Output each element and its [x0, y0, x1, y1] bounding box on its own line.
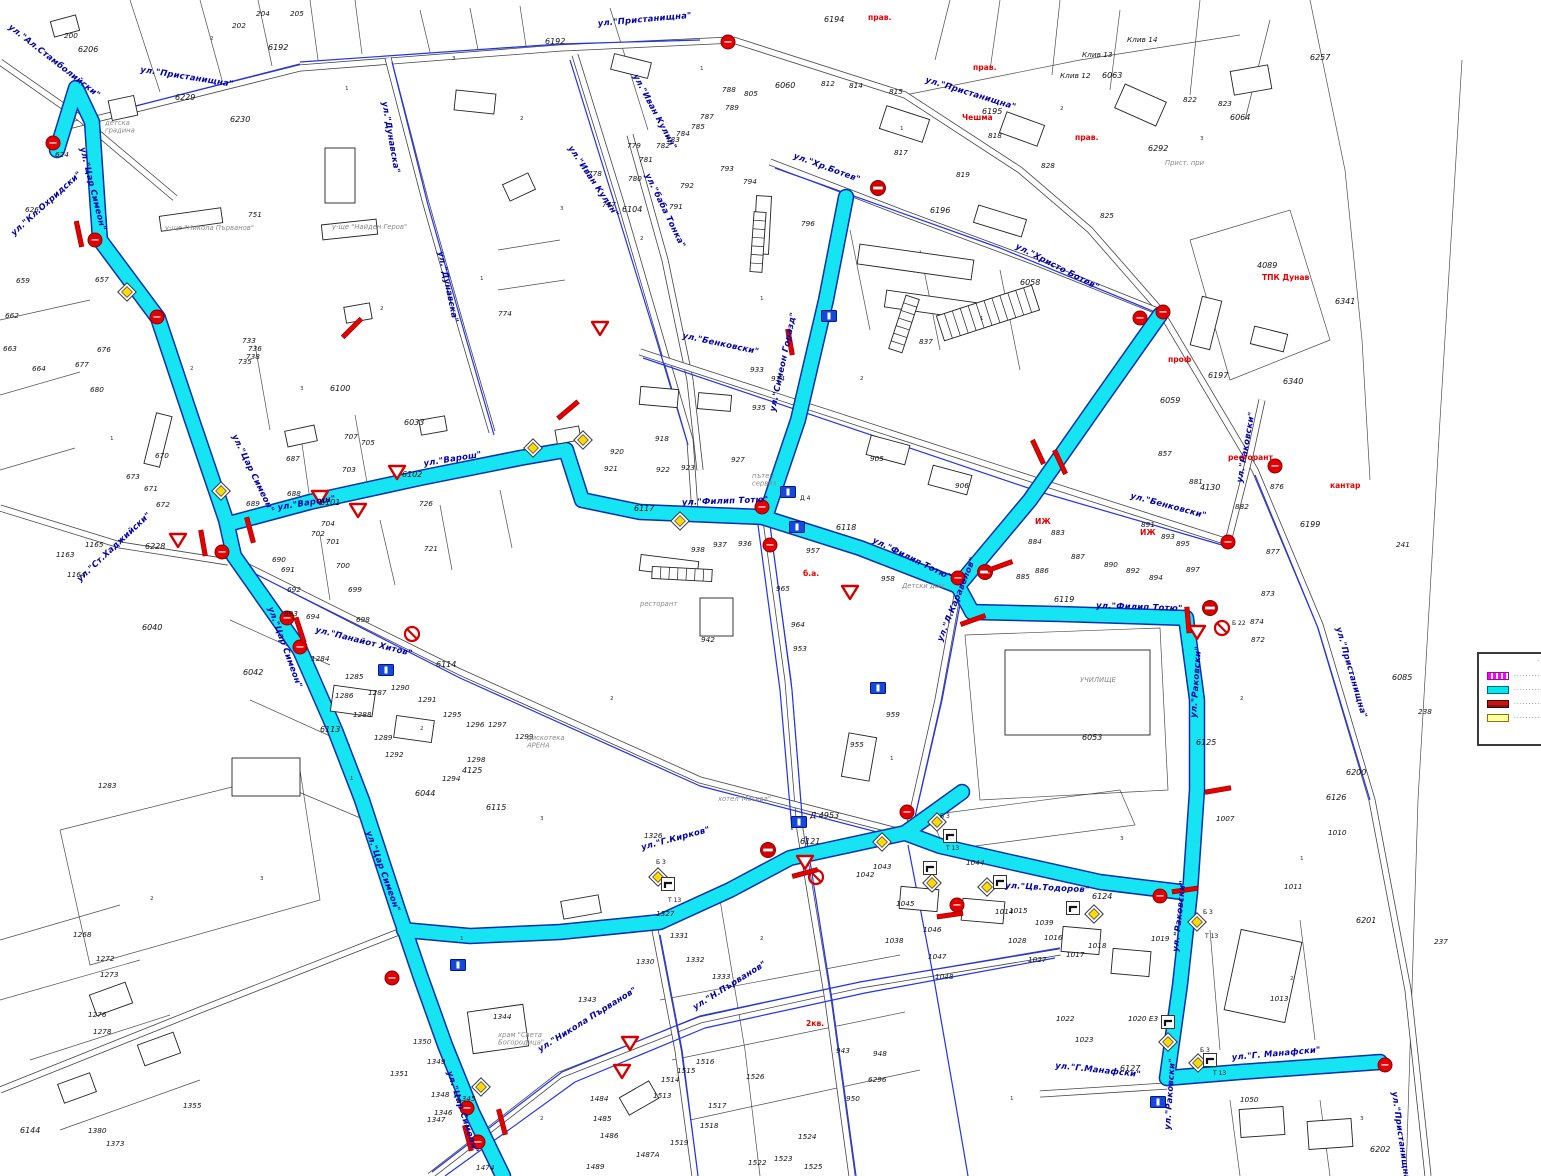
parcel-boundary: [310, 0, 318, 60]
legend-item-cyan-street: ··········: [1487, 686, 1541, 694]
poi-red-label: ТПК Дунав: [1262, 273, 1309, 282]
building-footprint: [1111, 948, 1151, 976]
parcel-number-label: 1048: [935, 972, 954, 981]
legend-title-dots: · ·: [1487, 658, 1541, 666]
parcel-number-label: 1487А: [636, 1150, 660, 1159]
parcel-number-label: 1347: [427, 1115, 446, 1124]
parcel-number-label: 885: [1016, 572, 1030, 581]
parcel-number-label: 1276: [88, 1010, 107, 1019]
house-number-label: 2: [640, 236, 644, 242]
traffic-sign-bar-icon: [987, 559, 1013, 572]
segment-number-label: 6199: [1300, 520, 1320, 529]
house-number-label: 3: [1120, 836, 1124, 842]
parcel-number-label: 780: [628, 174, 642, 183]
traffic-sign-circle-icon: [721, 35, 735, 49]
poi-red-label: ИЖ: [1035, 517, 1051, 526]
parcel-number-label: 794: [743, 177, 757, 186]
street-highlight: [958, 315, 1160, 586]
legend-label: ··········: [1514, 687, 1541, 694]
parcel-number-label: 873: [1261, 589, 1275, 598]
parcel-number-label: 751: [248, 210, 262, 219]
house-number-label: 3: [1360, 1116, 1364, 1122]
parcel-number-label: 689: [246, 499, 260, 508]
parcel-number-label: 935: [752, 403, 766, 412]
parcel-number-label: 676: [97, 345, 111, 354]
traffic-sign-circle-icon: [950, 898, 964, 912]
parcel-number-label: 1517: [708, 1101, 727, 1110]
parcel-number-label: 778: [588, 169, 602, 178]
street-name-label: ул."Пристанищна": [140, 64, 235, 89]
parcel-number-label: 1295: [443, 710, 462, 719]
street-name-label: ул."Пристанищна": [1390, 1091, 1413, 1176]
parcel-number-label: 238: [1418, 707, 1432, 716]
parcel-number-label: 936: [738, 539, 752, 548]
parcel-number-label: 959: [886, 710, 900, 719]
parcel-number-label: 815: [889, 87, 903, 96]
parcel-number-label: 785: [691, 122, 705, 131]
road-surface: [430, 952, 1060, 1176]
parcel-number-label: 814: [849, 81, 863, 90]
parcel-number-label: 789: [725, 103, 739, 112]
traffic-sign-circle-icon: [385, 971, 399, 985]
traffic-sign-circle-icon: [88, 233, 102, 247]
parcel-boundary: [498, 240, 560, 250]
traffic-sign-noentry-icon: [871, 181, 886, 196]
sign-code-label: Б 3: [656, 859, 666, 866]
parcel-number-label: 700: [336, 561, 350, 570]
parcel-number-label: 1288: [353, 710, 372, 719]
traffic-sign-yield-icon: [592, 322, 608, 335]
traffic-sign-diamond-icon: [1085, 905, 1103, 923]
parcel-number-label: 663: [3, 344, 17, 353]
building-footprint: [611, 54, 652, 79]
street-name-label: ул."Хр.Ботев": [792, 150, 862, 183]
building-footprint: [454, 90, 496, 114]
road-surface: [800, 830, 852, 1176]
segment-number-label: 6228: [145, 542, 165, 551]
traffic-sign-bluesign-icon: [781, 487, 796, 498]
parcel-number-label: 1294: [442, 774, 461, 783]
segment-number-label: 6340: [1283, 377, 1303, 386]
parcel-number-label: 953: [793, 644, 807, 653]
legend-item-yellow-sign: ··········: [1487, 714, 1541, 722]
segment-number-label: 6192: [545, 37, 565, 46]
parcel-number-label: 895: [1176, 539, 1190, 548]
street-highlight: [228, 450, 566, 524]
parcel-number-label: 923: [681, 463, 695, 472]
building-footprint: [639, 386, 678, 407]
parcel-number-label: 680: [90, 385, 104, 394]
parcel-number-label: 965: [776, 584, 790, 593]
house-number-label: 3: [1200, 136, 1204, 142]
parcel-number-label: Клив 12: [1060, 71, 1091, 80]
parcel-number-label: 1278: [93, 1027, 112, 1036]
parcel-number-label: 805: [744, 89, 758, 98]
traffic-sign-bar-icon: [937, 911, 963, 919]
house-number-label: 1: [480, 276, 484, 282]
segment-number-label: 6197: [1208, 371, 1229, 380]
parcel-boundary: [720, 900, 760, 1176]
parcel-number-label: 677: [75, 360, 89, 369]
parcel-number-label: 791: [669, 202, 683, 211]
building-footprint: [561, 895, 602, 919]
segment-number-label: 6053: [1082, 733, 1102, 742]
segment-number-label: 6119: [1054, 595, 1074, 604]
traffic-sign-circle-icon: [46, 136, 60, 150]
parcel-number-label: 1042: [856, 870, 875, 879]
building-footprint: [108, 96, 138, 121]
parcel-number-label: 1513: [653, 1091, 672, 1100]
parcel-number-label: 673: [126, 472, 140, 481]
parcel-number-label: 1292: [385, 750, 404, 759]
parcel-number-label: 1007: [1216, 814, 1235, 823]
traffic-sign-circle-icon: [1221, 535, 1235, 549]
traffic-sign-corner-icon: [944, 830, 957, 843]
parcel-number-label: 670: [155, 451, 169, 460]
parcel-boundary: [355, 415, 368, 488]
parcel-number-label: 938: [691, 545, 705, 554]
parcel-boundary: [1310, 0, 1370, 480]
traffic-sign-nostop-icon: [405, 627, 419, 641]
traffic-sign-bluesign-icon: [792, 817, 807, 828]
segment-number-label: 6192: [268, 43, 288, 52]
parcel-number-label: 237: [1434, 937, 1448, 946]
parcel-number-label: 883: [1051, 528, 1065, 537]
segment-number-label: 6292: [1148, 144, 1168, 153]
traffic-sign-circle-icon: [1156, 305, 1170, 319]
parcel-number-label: 1350: [413, 1037, 432, 1046]
parcel-number-label: 205: [290, 9, 304, 18]
poi-gray-label: у-ще "Никола Първанов": [164, 224, 254, 232]
parcel-number-label: 694: [306, 612, 320, 621]
parcel-number-label: 1028: [1008, 936, 1027, 945]
parcel-number-label: 1330: [636, 957, 655, 966]
parcel-number-label: 793: [720, 164, 734, 173]
parcel-number-label: 1515: [677, 1066, 696, 1075]
segment-number-label: 6117: [634, 504, 655, 513]
garage-row: [652, 566, 713, 581]
house-number-label: 1: [350, 776, 354, 782]
house-number-label: 1: [700, 66, 704, 72]
parcel-boundary: [1300, 920, 1315, 1040]
parcel-number-label: 202: [232, 21, 246, 30]
legend-label: ··········: [1514, 701, 1541, 708]
poi-gray-label: у-ще "Найден Геров": [331, 223, 407, 231]
street-name-label: ул."Бенковски": [682, 330, 760, 356]
parcel-boundary: [1190, 210, 1330, 380]
parcel-number-label: 876: [1270, 482, 1284, 491]
building-footprint: [394, 715, 435, 742]
parcel-number-label: 828: [1041, 161, 1055, 170]
parcel-number-label: 1017: [1066, 950, 1085, 959]
segment-number-label: 6040: [142, 623, 162, 632]
parcel-number-label: 958: [881, 574, 895, 583]
parcel-number-label: 659: [16, 276, 30, 285]
segment-number-label: 6201: [1356, 916, 1376, 925]
parcel-number-label: 937: [713, 540, 727, 549]
parcel-number-label: 921: [604, 464, 618, 473]
traffic-sign-corner-icon: [924, 862, 937, 875]
segment-number-label: 6044: [415, 789, 435, 798]
parcel-boundary: [380, 520, 395, 585]
poi-red-label: ресторант: [1228, 453, 1274, 462]
parcel-boundary: [355, 0, 362, 54]
house-number-label: 2: [520, 116, 524, 122]
parcel-number-label: 779: [627, 141, 641, 150]
parcel-number-label: 822: [1183, 95, 1197, 104]
parcel-number-label: 624: [55, 150, 69, 159]
parcel-boundary: [1052, 0, 1060, 75]
parcel-number-label: 704: [321, 519, 335, 528]
legend-label: ··········: [1514, 715, 1541, 722]
parcel-number-label: 1022: [1056, 1014, 1075, 1023]
traffic-sign-yield-icon: [350, 504, 366, 517]
sign-code-label: Б 3: [1203, 909, 1213, 916]
parcel-boundary: [935, 0, 950, 60]
segment-number-label: 6085: [1392, 673, 1412, 682]
house-number-label: 1: [460, 936, 464, 942]
street-name-label: ул."Дунавска": [436, 250, 461, 323]
parcel-number-label: 672: [156, 500, 170, 509]
utility-line: [445, 958, 1055, 1176]
parcel-number-label: 890: [1104, 560, 1118, 569]
house-number-label: 2: [190, 366, 194, 372]
traffic-sign-bluesign-icon: [451, 960, 466, 971]
street-name-label: ул."Пристанищна": [924, 74, 1017, 111]
building-footprint: [1250, 326, 1287, 352]
segment-number-label: 6059: [1160, 396, 1180, 405]
parcel-number-label: 933: [750, 365, 764, 374]
building-footprint: [857, 244, 974, 280]
house-number-label: 2: [860, 376, 864, 382]
parcel-number-label: 1284: [311, 654, 330, 663]
parcel-number-label: 906: [955, 481, 969, 490]
parcel-number-label: 1043: [873, 862, 892, 871]
parcel-number-label: 818: [988, 131, 1002, 140]
parcel-number-label: 1164: [67, 570, 86, 579]
parcel-number-label: 1355: [183, 1101, 202, 1110]
parcel-number-label: 1373: [106, 1139, 125, 1148]
sign-code-label: Т 13: [667, 897, 681, 904]
parcel-number-label: 893: [1161, 532, 1175, 541]
poi-red-label: б.а.: [803, 569, 819, 578]
segment-number-label: 6144: [20, 1126, 40, 1135]
garage-row: [750, 212, 766, 273]
legend-swatch-magenta-icon: [1487, 672, 1509, 680]
sign-code-label: Т 13: [1204, 933, 1218, 940]
parcel-number-label: 1044: [966, 858, 985, 867]
parcel-number-label: 825: [1100, 211, 1114, 220]
parcel-number-label: 894: [1149, 573, 1163, 582]
parcel-number-label: 1023: [1075, 1035, 1094, 1044]
sign-code-label: Б 3: [1200, 1047, 1210, 1054]
house-number-label: 3: [260, 876, 264, 882]
parcel-number-label: 1296: [466, 720, 485, 729]
parcel-number-label: 1165: [85, 540, 104, 549]
parcel-number-label: 1290: [391, 683, 410, 692]
parcel-number-label: 1046: [923, 925, 942, 934]
parcel-number-label: 701: [326, 537, 340, 546]
traffic-sign-bluesign-icon: [379, 665, 394, 676]
parcel-number-label: 774: [498, 309, 512, 318]
map-svg[interactable]: ул."Ал.Стамболийски"ул."Пристанищна"ул."…: [0, 0, 1541, 1176]
segment-number-label: 6101: [320, 498, 340, 507]
parcel-number-label: 200: [64, 31, 78, 40]
parcel-number-label: 1489: [586, 1162, 605, 1171]
parcel-number-label: 1016: [1044, 933, 1063, 942]
sign-code-label: Б 22: [1232, 620, 1246, 627]
segment-number-label: 6126: [1326, 793, 1346, 802]
building-footprint: [1230, 65, 1272, 95]
parcel-number-label: 6296: [868, 1075, 887, 1084]
house-number-label: 2: [1290, 976, 1294, 982]
traffic-sign-corner-icon: [1204, 1054, 1217, 1067]
house-number-label: 1: [1300, 856, 1304, 862]
parcel-number-label: 703: [342, 465, 356, 474]
segment-number-label: 6230: [230, 115, 250, 124]
poi-gray-label: Детски дом: [901, 582, 944, 590]
map-viewport[interactable]: ул."Ал.Стамболийски"ул."Пристанищна"ул."…: [0, 0, 1541, 1176]
parcel-number-label: 688: [287, 489, 301, 498]
parcel-number-label: 884: [1028, 537, 1042, 546]
house-number-label: 3: [452, 56, 456, 62]
house-number-label: 2: [1060, 106, 1064, 112]
traffic-sign-nostop-icon: [1215, 621, 1229, 635]
parcel-boundary: [990, 0, 1000, 70]
house-number-label: 2: [150, 896, 154, 902]
segment-number-label: 6196: [930, 206, 950, 215]
parcel-number-label: 1349: [427, 1057, 446, 1066]
parcel-boundary: [470, 8, 478, 50]
parcel-number-label: 691: [281, 565, 295, 574]
parcel-boundary: [500, 490, 512, 548]
parcel-number-label: 1297: [488, 720, 507, 729]
parcel-number-label: 887: [1071, 552, 1085, 561]
parcel-number-label: 671: [144, 484, 158, 493]
parcel-number-label: 857: [1158, 449, 1172, 458]
parcel-boundary: [1230, 1100, 1240, 1176]
segment-number-label: 6200: [1346, 768, 1366, 777]
segment-number-label: 6194: [824, 15, 844, 24]
parcel-number-label: 1015: [1009, 906, 1028, 915]
parcel-number-label: 957: [806, 546, 820, 555]
parcel-number-label: 726: [419, 499, 433, 508]
parcel-number-label: 657: [95, 275, 109, 284]
building-footprint: [879, 106, 929, 143]
segment-number-label: Д 4953: [809, 811, 839, 820]
parcel-number-label: 1010: [1328, 828, 1347, 837]
parcel-number-label: 1348: [431, 1090, 450, 1099]
house-number-label: 1: [900, 126, 904, 132]
parcel-number-label: 1518: [700, 1121, 719, 1130]
parcel-number-label: 934: [771, 374, 785, 383]
traffic-sign-yield-icon: [170, 534, 186, 547]
map-legend: · · ·········· ·········· ·········· ···…: [1477, 652, 1541, 746]
parcel-number-label: 241: [1396, 540, 1410, 549]
parcel-number-label: 792: [680, 181, 694, 190]
parcel-number-label: 1298: [467, 755, 486, 764]
parcel-number-label: 948: [873, 1049, 887, 1058]
traffic-sign-circle-icon: [1133, 311, 1147, 325]
legend-item-planned: ··········: [1487, 672, 1541, 680]
house-number-label: 3: [560, 206, 564, 212]
parcel-number-label: 1326: [644, 831, 663, 840]
parcel-number-label: 882: [1235, 502, 1249, 511]
parcel-number-label: 1525: [804, 1162, 823, 1171]
building-footprint: [700, 598, 733, 636]
parcel-number-label: 1018: [1088, 941, 1107, 950]
parcel-number-label: 777: [602, 200, 616, 209]
parcel-number-label: 1013: [1270, 994, 1289, 1003]
parcel-number-label: 964: [791, 620, 805, 629]
road-surface: [766, 520, 800, 830]
segment-number-label: 6100: [330, 384, 350, 393]
parcel-number-label: 1522: [748, 1158, 767, 1167]
building-footprint: [232, 758, 300, 796]
parcel-number-label: 1331: [670, 931, 689, 940]
segment-number-label: 6121: [800, 837, 820, 846]
parcel-number-label: Клив 13: [1082, 50, 1113, 59]
parcel-number-label: 905: [870, 454, 884, 463]
parcel-number-label: 1516: [696, 1057, 715, 1066]
parcel-boundary: [1190, 0, 1200, 95]
segment-number-label: 6058: [1020, 278, 1040, 287]
poi-gray-label: хотел"Москва": [717, 795, 771, 803]
parcel-number-label: 897: [1186, 565, 1200, 574]
segment-number-label: 6102: [402, 470, 422, 479]
parcel-boundary: [0, 905, 120, 940]
parcel-number-label: 886: [1035, 566, 1049, 575]
parcel-number-label: 707: [344, 432, 358, 441]
parcel-boundary: [60, 770, 320, 965]
traffic-sign-bluesign-icon: [871, 683, 886, 694]
parcel-number-label: 721: [424, 544, 438, 553]
legend-swatch-cyan-icon: [1487, 686, 1509, 694]
poi-red-label: прав.: [1075, 133, 1099, 142]
parcel-number-label: 781: [639, 155, 653, 164]
parcel-number-label: 1285: [345, 672, 364, 681]
parcel-number-label: 918: [655, 434, 669, 443]
segment-number-label: 6104: [622, 205, 642, 214]
poi-gray-label: дискотекаАРЕНА: [526, 734, 565, 750]
road-casing: [430, 952, 1060, 1176]
traffic-sign-bar-icon: [1205, 785, 1231, 794]
house-number-label: 3: [540, 816, 544, 822]
parcel-number-label: 950: [846, 1094, 860, 1103]
parcel-number-label: 872: [1251, 635, 1265, 644]
segment-number-label: 6115: [486, 803, 506, 812]
house-number-label: 2: [1240, 696, 1244, 702]
sign-code-label: Т 13: [945, 845, 959, 852]
traffic-sign-corner-icon: [662, 878, 675, 891]
parcel-number-label: 1272: [96, 954, 115, 963]
traffic-sign-bluesign-icon: [822, 311, 837, 322]
parcel-number-label: 1283: [98, 781, 117, 790]
parcel-number-label: 1327: [656, 909, 675, 918]
parcel-number-label: 662: [5, 311, 19, 320]
parcel-number-label: 1514: [661, 1075, 680, 1084]
legend-swatch-red-icon: [1487, 700, 1509, 708]
house-number-label: 1: [760, 296, 764, 302]
parcel-number-label: 1291: [418, 695, 437, 704]
parcel-number-label: 664: [32, 364, 46, 373]
parcel-number-label: 943: [836, 1046, 850, 1055]
parcel-number-label: 892: [1126, 566, 1140, 575]
segment-number-label: 6206: [78, 45, 98, 54]
traffic-sign-circle-icon: [150, 310, 164, 324]
parcel-number-label: 1333: [712, 972, 731, 981]
parcel-number-label: 699: [348, 585, 362, 594]
